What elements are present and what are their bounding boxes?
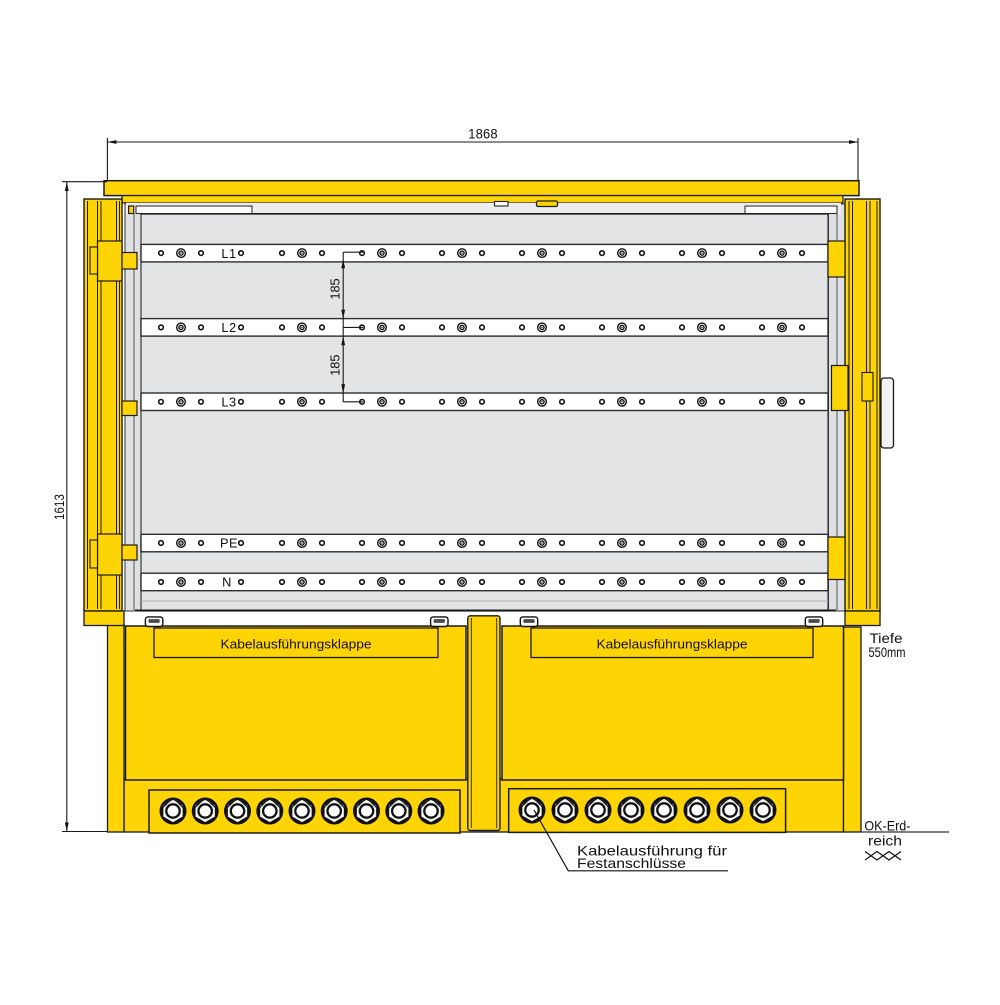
svg-text:Tiefe: Tiefe bbox=[870, 631, 903, 646]
svg-text:PE: PE bbox=[220, 536, 238, 551]
svg-text:Festanschlüsse: Festanschlüsse bbox=[577, 856, 686, 871]
svg-text:OK-Erd-: OK-Erd- bbox=[864, 819, 910, 834]
svg-text:L2: L2 bbox=[221, 320, 236, 335]
svg-text:Kabelausführungsklappe: Kabelausführungsklappe bbox=[221, 637, 372, 652]
svg-text:L1: L1 bbox=[221, 246, 236, 261]
svg-text:L3: L3 bbox=[221, 394, 236, 409]
svg-text:1613: 1613 bbox=[51, 494, 67, 520]
svg-text:Kabelausführungsklappe: Kabelausführungsklappe bbox=[597, 637, 748, 652]
svg-text:reich: reich bbox=[868, 834, 902, 849]
svg-text:N: N bbox=[222, 575, 232, 590]
svg-text:185: 185 bbox=[328, 278, 343, 299]
svg-text:185: 185 bbox=[328, 355, 343, 376]
svg-text:550mm: 550mm bbox=[869, 645, 906, 660]
svg-text:1868: 1868 bbox=[468, 126, 498, 142]
